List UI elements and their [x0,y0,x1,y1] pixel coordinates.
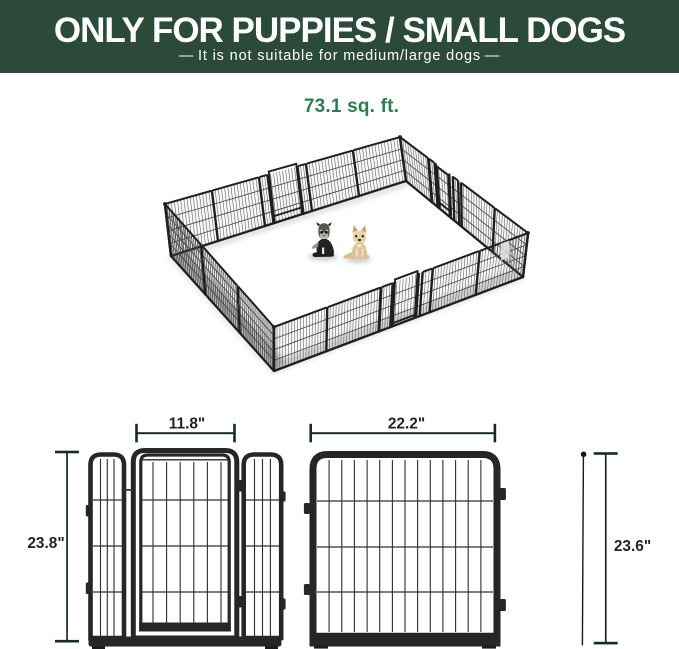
svg-text:23.8": 23.8" [27,535,64,552]
svg-text:11.8": 11.8" [169,416,205,433]
svg-text:23.6": 23.6" [614,538,651,555]
svg-text:22.2": 22.2" [388,416,425,433]
